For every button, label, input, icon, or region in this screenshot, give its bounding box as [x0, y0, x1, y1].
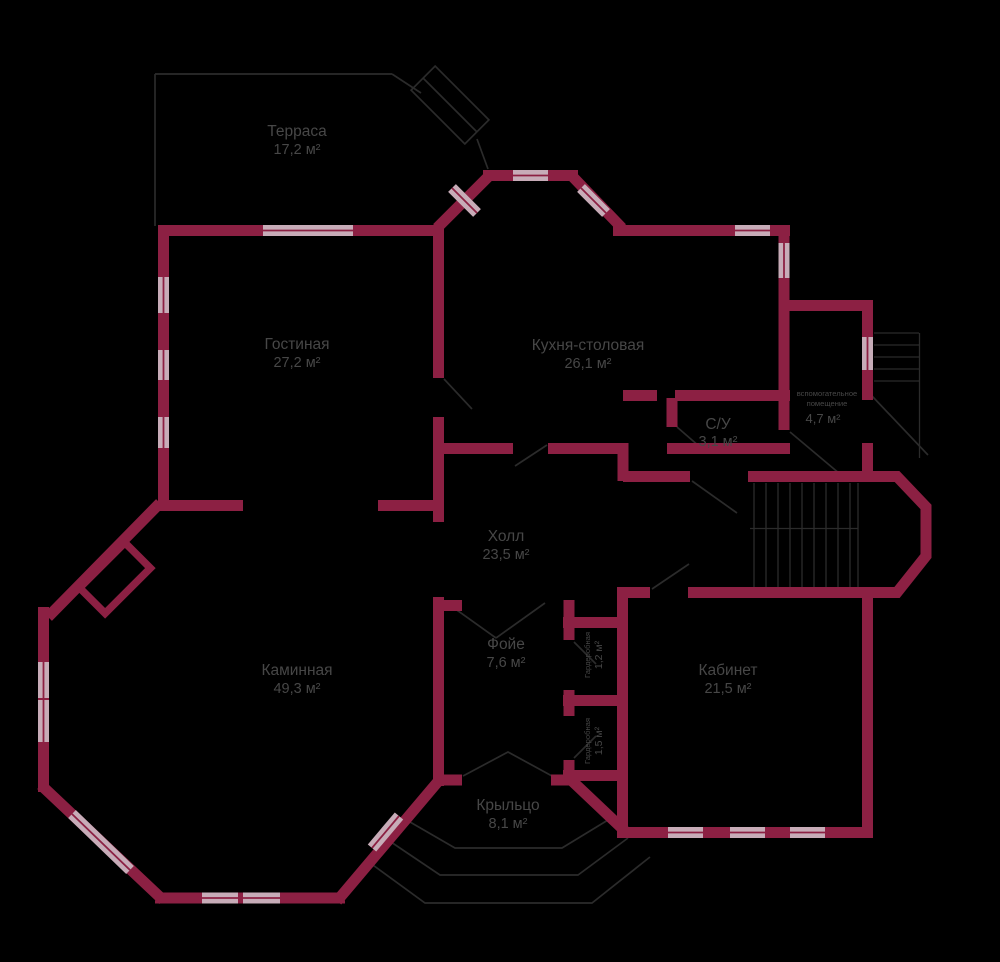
floor-plan-page: Терраса 17,2 м² Гостиная 27,2 м² Кухня-с… [0, 0, 1000, 962]
room-label-fireplace-room: Каминная [261, 662, 332, 679]
room-label-living-room: Гостиная [264, 336, 329, 353]
windows [38, 170, 873, 904]
room-label-wardrobe-1: Гардеробная [583, 632, 592, 678]
room-area-kitchen: 26,1 м² [564, 356, 611, 372]
room-area-fireplace-room: 49,3 м² [273, 681, 320, 697]
porch-steps [366, 820, 650, 903]
stair-treads [750, 333, 920, 587]
room-label-foyer: Фойе [487, 636, 525, 653]
room-label-utility-line2: помещение [807, 399, 848, 408]
room-area-study: 21,5 м² [704, 681, 751, 697]
door-swing-lines [444, 379, 928, 758]
fireplace [80, 543, 151, 614]
terrace-outline [155, 74, 488, 226]
room-label-bathroom: С/У [705, 416, 731, 433]
room-label-porch: Крыльцо [476, 797, 539, 814]
door-swings [444, 379, 928, 758]
room-area-foyer: 7,6 м² [487, 655, 526, 671]
floor-plan-svg: Терраса 17,2 м² Гостиная 27,2 м² Кухня-с… [0, 0, 1000, 962]
room-label-study: Кабинет [699, 662, 758, 679]
room-label-terrace: Терраса [267, 123, 327, 140]
room-label-wardrobe-2: Гардеробная [583, 718, 592, 764]
room-label-wardrobe-2-group: Гардеробная 1,5 м² [583, 718, 605, 764]
room-area-bathroom: 3,1 м² [699, 434, 738, 450]
stair-main-flight [750, 483, 858, 587]
walls [41, 176, 926, 902]
room-label-hall: Холл [488, 528, 525, 545]
porch-edge [463, 752, 552, 776]
room-label-wardrobe-1-group: Гардеробная 1,2 м² [583, 632, 605, 678]
room-area-utility: 4,7 м² [806, 411, 842, 426]
terrace-steps-midline [423, 78, 477, 132]
room-label-utility-line1: вспомогательное [797, 389, 858, 398]
room-area-hall: 23,5 м² [482, 547, 529, 563]
room-label-kitchen: Кухня-столовая [532, 337, 645, 354]
wall-segments [41, 176, 926, 902]
window-midline [72, 814, 130, 870]
room-area-porch: 8,1 м² [489, 816, 528, 832]
room-area-living-room: 27,2 м² [273, 355, 320, 371]
room-area-wardrobe-2: 1,5 м² [593, 726, 605, 755]
room-area-terrace: 17,2 м² [273, 142, 320, 158]
room-area-wardrobe-1: 1,2 м² [593, 640, 605, 669]
terrace-steps [411, 66, 489, 144]
